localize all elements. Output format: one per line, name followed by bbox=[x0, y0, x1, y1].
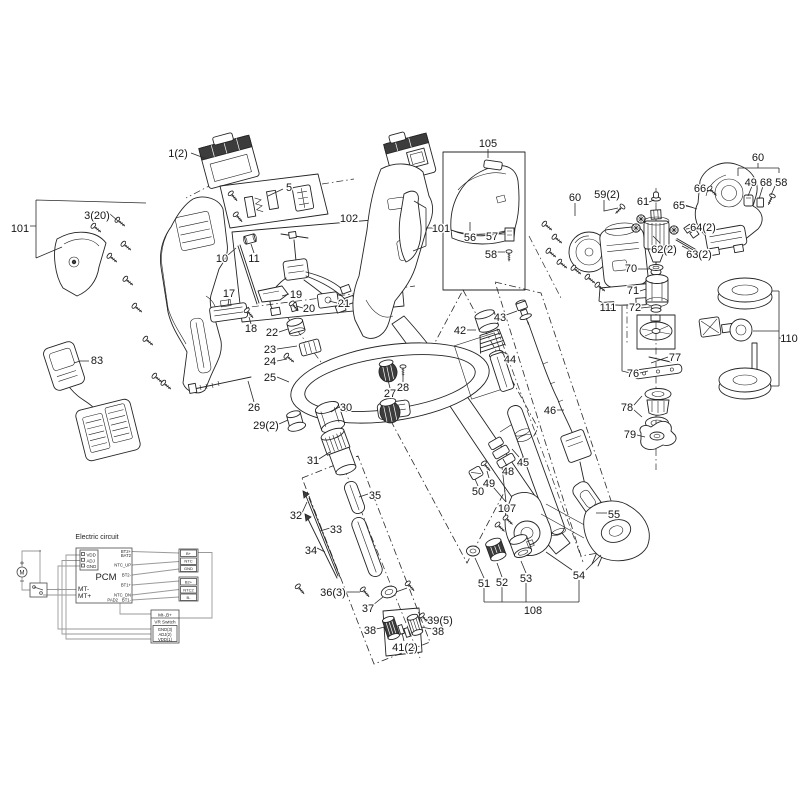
pcm-left-pin-VDD: VDD bbox=[87, 553, 96, 558]
circuit-pin-labels: BT2+BAT2NTC_UPBT2-BT1+NTC_DNBT1-VDDADJGN… bbox=[87, 549, 195, 642]
pcm-pin-BT1+: BT1+ bbox=[121, 583, 132, 588]
part-label-36-3-: 36(3) bbox=[320, 587, 346, 599]
conn1-pin-NTC: NTC bbox=[184, 559, 192, 564]
part-label-23: 23 bbox=[264, 344, 276, 356]
part-label-3-20-: 3(20) bbox=[84, 210, 110, 222]
part-label-11: 11 bbox=[248, 253, 259, 265]
part-label-30: 30 bbox=[340, 402, 352, 414]
part-label-21: 21 bbox=[338, 298, 350, 310]
part-label-57: 57 bbox=[486, 231, 498, 243]
handle-housing-left bbox=[160, 197, 227, 393]
part-label-18: 18 bbox=[245, 323, 257, 335]
part-label-77: 77 bbox=[669, 352, 681, 364]
pcm-left-pin-GND: GND bbox=[87, 564, 97, 569]
part-label-51: 51 bbox=[478, 578, 490, 590]
part-label-76: 76 bbox=[627, 368, 639, 380]
vr-switch-label: VR Switch bbox=[154, 620, 176, 625]
part-label-52: 52 bbox=[496, 577, 508, 589]
spool-assembly bbox=[699, 278, 772, 399]
part-label-20: 20 bbox=[303, 303, 315, 315]
vr-header: Mt-,B+ bbox=[158, 613, 172, 618]
part-label-55: 55 bbox=[608, 509, 620, 521]
part-label-108: 108 bbox=[524, 605, 542, 617]
conn2-pin-B2+: B2+ bbox=[185, 580, 193, 585]
part-label-59-2-: 59(2) bbox=[594, 189, 620, 201]
part-label-33: 33 bbox=[330, 524, 342, 536]
part-label-78: 78 bbox=[621, 402, 633, 414]
pcm-pin-BAT2: BAT2 bbox=[121, 553, 132, 558]
conn2-pin-B-: B- bbox=[187, 595, 192, 600]
part-label-48: 48 bbox=[502, 466, 514, 478]
part-label-32: 32 bbox=[290, 510, 302, 522]
part-label-10: 10 bbox=[216, 253, 228, 265]
part-label-83: 83 bbox=[91, 355, 103, 367]
part-label-5: 5 bbox=[286, 182, 292, 194]
part-label-58: 58 bbox=[485, 249, 497, 261]
pcm-left-pin-ADJ: ADJ bbox=[87, 558, 95, 563]
part-label-61: 61 bbox=[637, 196, 649, 208]
part-label-49-68-58: 49 68 58 bbox=[745, 177, 788, 189]
part-label-46: 46 bbox=[544, 405, 556, 417]
part-label-63-2-: 63(2) bbox=[686, 249, 712, 261]
part-label-70: 70 bbox=[625, 263, 637, 275]
part-label-38: 38 bbox=[364, 625, 376, 637]
dashed-group-boxes bbox=[302, 282, 627, 664]
part-label-41-2-: 41(2) bbox=[392, 642, 418, 654]
part-label-71: 71 bbox=[627, 285, 639, 297]
part-label-24: 24 bbox=[264, 356, 276, 368]
part-label-43: 43 bbox=[494, 312, 506, 324]
part-label-105: 105 bbox=[479, 138, 497, 150]
part-label-60: 60 bbox=[752, 152, 764, 164]
mt-plus-pin: MT+ bbox=[78, 593, 91, 600]
part-label-25: 25 bbox=[264, 372, 276, 384]
conn2-pin-NTC2: NTC2 bbox=[183, 588, 194, 593]
part-label-102: 102 bbox=[340, 213, 358, 225]
part-label-107: 107 bbox=[498, 503, 516, 515]
part-label-62-2-: 62(2) bbox=[651, 244, 677, 256]
part-label-45: 45 bbox=[517, 457, 529, 469]
part-label-65: 65 bbox=[673, 200, 685, 212]
part-label-38: 38 bbox=[432, 626, 444, 638]
part-label-49: 49 bbox=[483, 478, 495, 490]
part-label-37: 37 bbox=[362, 603, 374, 615]
conn1-pin-B+: B+ bbox=[186, 551, 192, 556]
parts-diagram-page: Electric circuit PCM MT- MT+ PAD2 M Mt-,… bbox=[0, 0, 800, 800]
part-label-44: 44 bbox=[504, 354, 516, 366]
conn1-pin-GND: GND bbox=[184, 566, 193, 571]
part-label-66: 66 bbox=[694, 183, 706, 195]
exploded-parts-diagram: Electric circuit PCM MT- MT+ PAD2 M Mt-,… bbox=[0, 0, 800, 800]
circuit-title: Electric circuit bbox=[75, 534, 118, 541]
part-label-27: 27 bbox=[384, 388, 396, 400]
part-label-22: 22 bbox=[266, 327, 278, 339]
motor-symbol: M bbox=[20, 571, 25, 577]
vr-pin-VDD(1): VDD(1) bbox=[158, 637, 173, 642]
part-label-35: 35 bbox=[369, 490, 381, 502]
part-label-72: 72 bbox=[629, 302, 641, 314]
housing-cover bbox=[55, 232, 106, 296]
pcm-pin-NTC_UP: NTC_UP bbox=[114, 563, 131, 568]
pcm-label: PCM bbox=[95, 572, 116, 583]
part-label-34: 34 bbox=[305, 545, 317, 557]
part-label-31: 31 bbox=[307, 455, 319, 467]
part-label-60: 60 bbox=[569, 192, 581, 204]
part-label-111: 111 bbox=[600, 302, 617, 314]
part-label-1-2-: 1(2) bbox=[168, 148, 188, 160]
part-label-54: 54 bbox=[573, 570, 585, 582]
part-label-28: 28 bbox=[397, 382, 409, 394]
mt-minus-pin: MT- bbox=[78, 586, 89, 593]
motor-cover-box bbox=[443, 152, 525, 290]
part-label-110: 110 bbox=[780, 333, 798, 345]
part-label-56: 56 bbox=[464, 232, 476, 244]
part-label-53: 53 bbox=[520, 573, 532, 585]
part-label-79: 79 bbox=[624, 429, 636, 441]
part-label-26: 26 bbox=[248, 402, 260, 414]
part-label-17: 17 bbox=[223, 288, 235, 300]
part-label-29-2-: 29(2) bbox=[253, 420, 279, 432]
part-label-50: 50 bbox=[472, 486, 484, 498]
part-label-19: 19 bbox=[290, 289, 302, 301]
part-label-101: 101 bbox=[11, 223, 29, 235]
pcm-pin-BT1-: BT1- bbox=[122, 598, 132, 603]
part-label-101: 101 bbox=[432, 223, 450, 235]
pad2-pin: PAD2 bbox=[107, 598, 118, 603]
part-label-42: 42 bbox=[454, 325, 466, 337]
part-label-64-2-: 64(2) bbox=[690, 222, 716, 234]
pcm-pin-BT2-: BT2- bbox=[122, 573, 132, 578]
